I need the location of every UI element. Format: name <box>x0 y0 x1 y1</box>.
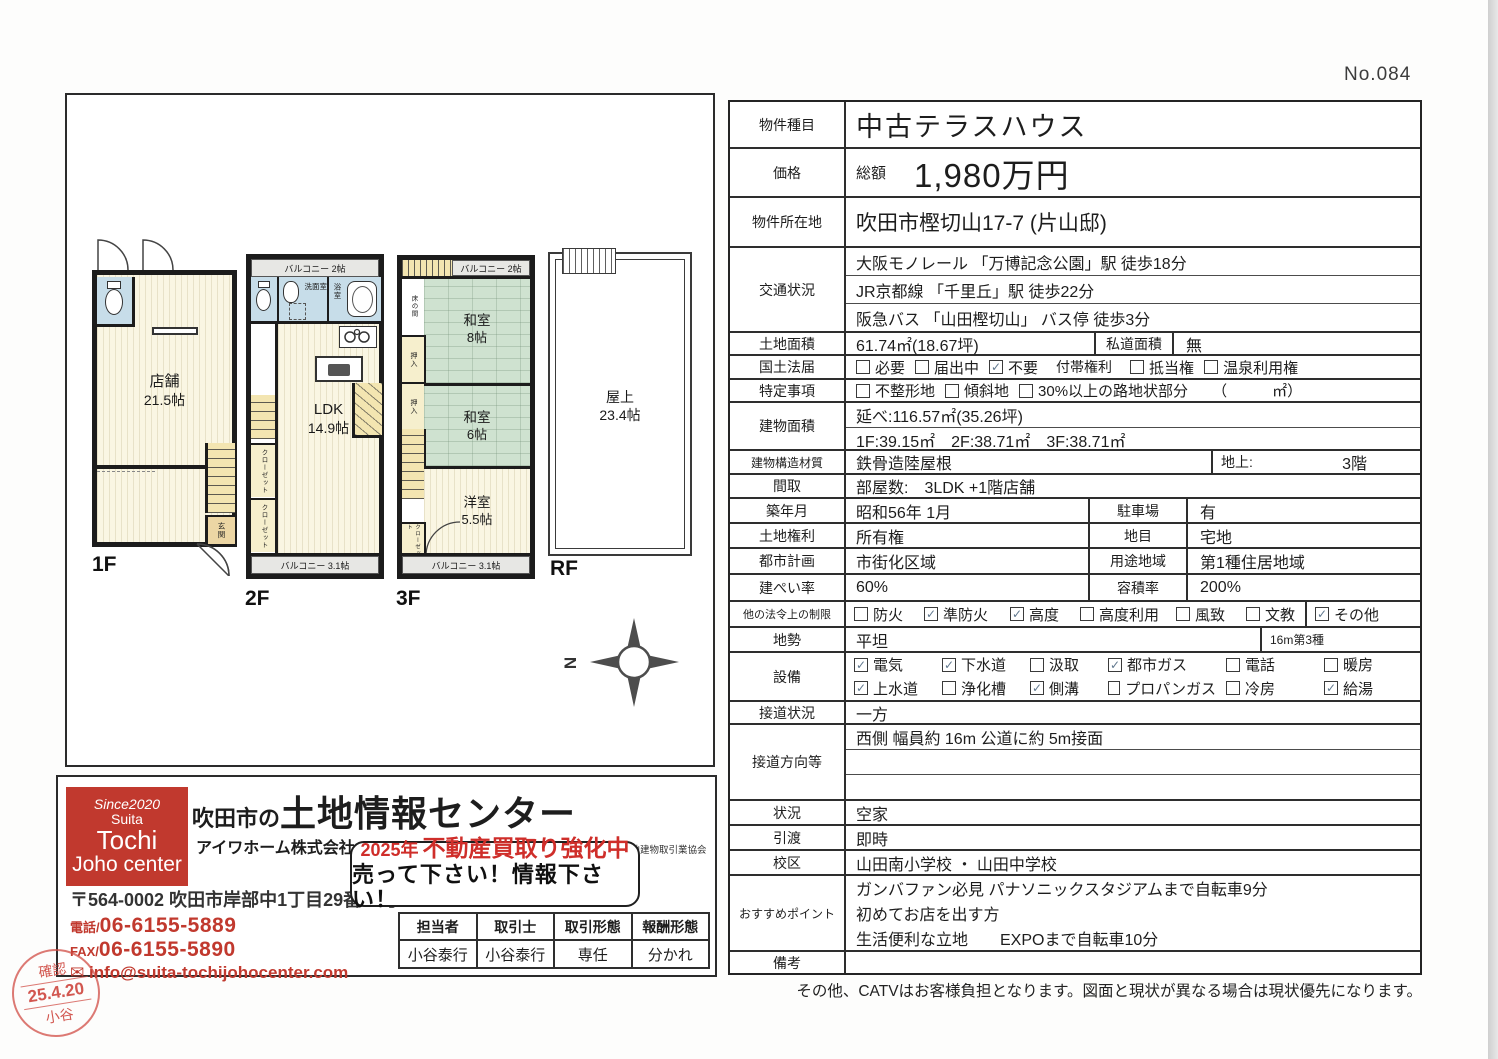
promo-banner: 2025年不動産買取り強化中 売って下さい！情報下さい！ <box>350 841 640 907</box>
coverage-value: 60% <box>846 575 1088 600</box>
land-rights-value: 所有権 <box>846 524 1088 547</box>
banner-line2: 売って下さい！情報下さい！ <box>352 862 638 913</box>
checkbox-gesuido: ✓下水道 <box>942 654 1020 675</box>
transport-line: 大阪モノレール 「万博記念公園」駅 徒歩18分 <box>846 248 1420 275</box>
row-city-planning: 都市計画 市街化区域 用途地域 第1種住居地域 <box>730 549 1420 575</box>
sink-icon <box>328 364 350 376</box>
height-district-note: 16m第3種 <box>1260 628 1420 651</box>
banner-line1: 2025年不動産買取り強化中 <box>360 835 629 861</box>
stairs-3f-down <box>402 429 426 499</box>
road-direction-lines: 西側 幅員約 16m 公道に約 5m接面 <box>846 725 1420 799</box>
road-direction-line <box>846 774 1420 799</box>
checkbox-kyuto: ✓給湯 <box>1324 678 1410 699</box>
row-label: 物件所在地 <box>730 198 846 246</box>
checkbox-hitsuyo: 必要 <box>856 357 905 378</box>
bath-label: 浴室 <box>332 283 343 300</box>
row-label: 特定事項 <box>730 380 846 401</box>
row-coverage: 建ぺい率 60% 容積率 200% <box>730 575 1420 602</box>
washer-space-icon <box>289 303 306 320</box>
tub-oval <box>352 286 373 313</box>
floor-tag-2f: 2F <box>245 587 270 611</box>
row-label: 物件種目 <box>730 102 846 147</box>
balcony-3f-bottom: バルコニー 3.1帖 <box>402 556 530 574</box>
checkbox-onsen: 温泉利用権 <box>1204 357 1298 378</box>
row-label: 築年月 <box>730 499 846 522</box>
row-label: 備考 <box>730 952 846 973</box>
stairs-rf <box>562 248 616 274</box>
row-label: 引渡 <box>730 826 846 849</box>
checkbox-sonota: ✓その他 <box>1315 604 1379 625</box>
toilet-room-1f <box>97 277 135 327</box>
row-label: 都市計画 <box>730 549 846 573</box>
footer-note: その他、CATVはお客様負担となります。図面と現状が異なる場合は現状優先になりま… <box>728 979 1422 1001</box>
oshiire-3f-2: 押入 <box>402 382 426 429</box>
fax-line: FAX/06-6155-5890 <box>70 939 399 960</box>
agent-col-header: 取引形態 <box>554 913 632 940</box>
row-school: 校区 山田南小学校 ・ 山田中学校 <box>730 851 1420 876</box>
row-label: 間取 <box>730 475 846 497</box>
price-cell: 総額 1,980万円 <box>846 149 1420 196</box>
checkbox-sokko: ✓側溝 <box>1030 678 1098 699</box>
sub-label: 容積率 <box>1088 575 1188 600</box>
row-land-rights: 土地権利 所有権 地目 宅地 <box>730 524 1420 549</box>
recommend-line: ガンバファン必見 パナソニックスタジアムまで自転車9分 <box>846 876 1420 901</box>
recommend-line: 初めてお店を出す方 <box>846 901 1420 926</box>
company-panel: Since2020 Suita Tochi Joho center 吹田市の土地… <box>56 775 717 977</box>
washroom-label: 洗面室 <box>305 281 328 292</box>
row-handover: 引渡 即時 <box>730 826 1420 851</box>
agent-cell: 小谷泰行 <box>399 940 477 968</box>
tokutei-options: 不整形地 傾斜地 30%以上の路地状部分 （ ㎡） <box>846 380 1420 401</box>
land-category-value: 宅地 <box>1188 524 1420 547</box>
washbasin-icon <box>283 281 299 303</box>
floorplan-1f: 店舗 21.5帖 玄関 <box>92 270 237 547</box>
washroom-2f: 洗面室 <box>277 277 329 321</box>
transport-lines: 大阪モノレール 「万博記念公園」駅 徒歩18分 JR京都線 「千里丘」駅 徒歩2… <box>846 248 1420 331</box>
washitsu-8-room: 和室 8帖 <box>424 279 530 383</box>
checkbox-junboka: ✓準防火 <box>924 604 1000 625</box>
kitchen-counter <box>315 356 363 382</box>
built-date-value: 昭和56年 1月 <box>846 499 1088 522</box>
scan-edge-artifact <box>1488 0 1498 1059</box>
utilities-line1: ✓電気 ✓下水道 汲取 ✓都市ガス 電話 暖房 <box>846 653 1420 677</box>
road-direction-line: 西側 幅員約 16m 公道に約 5m接面 <box>846 725 1420 749</box>
agent-col-header: 報酬形態 <box>632 913 710 940</box>
row-label: 他の法令上の制限 <box>730 602 846 626</box>
floorplan-2f: バルコニー 2帖 洗面室 浴室 LDK 14.9帖 <box>246 254 384 579</box>
room-label-washitsu6: 和室 6帖 <box>424 410 530 443</box>
washitsu-6-room: 和室 6帖 <box>424 386 530 466</box>
price-prefix: 総額 <box>856 162 886 183</box>
counter-1f <box>152 327 198 335</box>
checkbox-keisha: 傾斜地 <box>945 380 1009 401</box>
tokonoma-3f: 床の間 <box>402 279 426 333</box>
checkbox-bunkyo: 文教 <box>1246 604 1295 625</box>
agent-table-header: 担当者 取引士 取引形態 報酬形態 <box>399 913 709 940</box>
toilet-tank-icon <box>107 281 121 289</box>
utilities-lines: ✓電気 ✓下水道 汲取 ✓都市ガス 電話 暖房 ✓上水道 浄化槽 ✓側溝 プロパ… <box>846 653 1420 700</box>
row-label: 建ぺい率 <box>730 575 846 600</box>
checkbox-reibo: 冷房 <box>1226 678 1314 699</box>
stamp-name: 小谷 <box>44 1004 75 1028</box>
row-road-contact: 接道状況 一方 <box>730 702 1420 725</box>
closet-2f-2: クローゼット <box>251 498 275 552</box>
floor-tag-1f: 1F <box>92 553 117 577</box>
transport-line: JR京都線 「千里丘」駅 徒歩22分 <box>846 275 1420 303</box>
checkbox-kodoriyo: 高度利用 <box>1080 604 1166 625</box>
row-recommend: おすすめポイント ガンバファン必見 パナソニックスタジアムまで自転車9分 初めて… <box>730 876 1420 952</box>
toilet-tank-icon <box>258 281 270 288</box>
stove-icon <box>339 326 377 348</box>
stairs-3f-top <box>402 260 454 276</box>
compass-north-letter: N <box>561 657 581 669</box>
row-label: おすすめポイント <box>730 876 846 950</box>
entrance-1f: 玄関 <box>205 515 235 544</box>
company-name: アイワホーム株式会社 <box>196 840 355 857</box>
city-planning-value: 市街化区域 <box>846 549 1088 573</box>
sub-label: 地目 <box>1088 524 1188 547</box>
structure-value: 鉄骨造陸屋根 <box>846 451 1211 473</box>
floors-cell: 地上: 3階 <box>1211 451 1420 473</box>
floor-tag-rf: RF <box>550 557 578 581</box>
compass-star-icon <box>587 615 682 710</box>
email-address: info@suita-tochijohocenter.com <box>89 963 348 982</box>
private-road-value: 無 <box>1174 333 1420 354</box>
utilities-line2: ✓上水道 浄化槽 ✓側溝 プロパンガス 冷房 ✓給湯 <box>846 677 1420 701</box>
checkbox-kumitori: 汲取 <box>1030 654 1098 675</box>
sub-label: 用途地域 <box>1088 549 1188 573</box>
row-utilities: 設備 ✓電気 ✓下水道 汲取 ✓都市ガス 電話 暖房 ✓上水道 浄化槽 ✓側溝 … <box>730 653 1420 702</box>
row-address: 物件所在地 吹田市樫切山17-7 (片山邸) <box>730 198 1420 248</box>
balcony-2f-top: バルコニー 2帖 <box>251 259 379 277</box>
ldk-room: LDK 14.9帖 <box>278 324 379 553</box>
row-built-date: 築年月 昭和56年 1月 駐車場 有 <box>730 499 1420 524</box>
stairs-2f-down <box>251 395 275 439</box>
building-area-lines: 延べ:116.57㎡(35.26坪) 1F:39.15㎡ 2F:38.71㎡ 3… <box>846 403 1420 449</box>
door-arc-icon <box>195 542 237 576</box>
property-detail-table: 物件種目 中古テラスハウス 価格 総額 1,980万円 物件所在地 吹田市樫切山… <box>728 100 1422 975</box>
row-label: 設備 <box>730 653 846 700</box>
yoshitsu-room: 洋室 5.5帖 <box>424 469 530 556</box>
row-label: 校区 <box>730 851 846 874</box>
compass-rose: N <box>565 615 685 710</box>
row-label: 建物面積 <box>730 403 846 449</box>
row-building-area: 建物面積 延べ:116.57㎡(35.26坪) 1F:39.15㎡ 2F:38.… <box>730 403 1420 451</box>
sonota-cell: ✓その他 <box>1305 602 1465 626</box>
row-structure: 建物構造材質 鉄骨造陸屋根 地上: 3階 <box>730 451 1420 475</box>
room-label-roof: 屋上 23.4帖 <box>550 389 690 424</box>
row-road-direction: 接道方向等 西側 幅員約 16m 公道に約 5m接面 <box>730 725 1420 801</box>
school-value: 山田南小学校 ・ 山田中学校 <box>846 851 1420 874</box>
building-area-floors: 1F:39.15㎡ 2F:38.71㎡ 3F:38.71㎡ <box>846 427 1420 452</box>
company-logo: Since2020 Suita Tochi Joho center <box>66 787 188 886</box>
agent-cell: 分かれ <box>632 940 710 968</box>
checkbox-fuyo: ✓不要 <box>989 357 1038 378</box>
checkbox-denki: ✓電気 <box>854 654 932 675</box>
partition-wall <box>97 465 209 469</box>
door-arc-icon <box>95 236 200 271</box>
floorplan-rf: 屋上 23.4帖 <box>548 252 692 556</box>
checkbox-teitoken: 抵当権 <box>1130 357 1194 378</box>
balcony-2f-bottom: バルコニー 3.1帖 <box>251 556 379 574</box>
terrain-value: 平坦 <box>846 628 1260 651</box>
building-area-total: 延べ:116.57㎡(35.26坪) <box>846 403 1420 427</box>
row-transport: 交通状況 大阪モノレール 「万博記念公園」駅 徒歩18分 JR京都線 「千里丘」… <box>730 248 1420 333</box>
sub-label: 駐車場 <box>1088 499 1188 522</box>
restriction-options: 防火 ✓準防火 ✓高度 高度利用 風致 文教 <box>846 602 1305 626</box>
checkbox-fuchi: 風致 <box>1176 604 1236 625</box>
checkbox-fuseikei: 不整形地 <box>856 380 935 401</box>
remarks-value <box>846 952 1420 973</box>
checkbox-denwa: 電話 <box>1226 654 1314 675</box>
floors-value: 3階 <box>1342 450 1367 474</box>
row-property-type: 物件種目 中古テラスハウス <box>730 102 1420 149</box>
row-label: 地勢 <box>730 628 846 651</box>
checkbox-josuido: ✓上水道 <box>854 678 932 699</box>
recommend-line: 生活便利な立地 EXPOまで自転車10分 <box>846 925 1420 950</box>
row-price: 価格 総額 1,980万円 <box>730 149 1420 198</box>
land-area-value: 61.74㎡(18.67坪) <box>846 333 1094 354</box>
floorplan-panel: 店舗 21.5帖 玄関 1F バルコニー 2帖 洗面室 浴室 <box>65 93 715 767</box>
recommend-lines: ガンバファン必見 パナソニックスタジアムまで自転車9分 初めてお店を出す方 生活… <box>846 876 1420 950</box>
company-title-prefix: 吹田市の <box>192 806 280 831</box>
checkbox-boka: 防火 <box>854 604 914 625</box>
toilet-icon <box>105 289 123 315</box>
stairs-1f <box>205 443 235 513</box>
row-label: 土地面積 <box>730 333 846 354</box>
floor-tag-3f: 3F <box>396 587 421 611</box>
checkbox-danbo: 暖房 <box>1324 654 1410 675</box>
row-label: 土地権利 <box>730 524 846 547</box>
floorplan-3f: バルコニー 2帖 床の間 和室 8帖 押入 押入 和室 6帖 洋 <box>397 255 535 579</box>
row-label: 接道方向等 <box>730 725 846 799</box>
row-legal-restrictions: 他の法令上の制限 防火 ✓準防火 ✓高度 高度利用 風致 文教 ✓その他 <box>730 602 1420 628</box>
checkbox-jokaso: 浄化槽 <box>942 678 1020 699</box>
row-kokudo: 国土法届 必要 届出中 ✓不要 付帯権利 抵当権 温泉利用権 <box>730 356 1420 380</box>
toilet-icon <box>256 289 271 311</box>
futai-kenri-label: 付帯権利 <box>1056 357 1112 377</box>
agent-table: 担当者 取引士 取引形態 報酬形態 小谷泰行 小谷泰行 専任 分かれ <box>398 912 710 969</box>
company-contact: 〒564-0002 吹田市岸部中1丁目29番13号 電話/06-6155-588… <box>70 891 399 981</box>
sub-label: 私道面積 <box>1094 333 1174 354</box>
partition-wall <box>275 321 278 553</box>
row-tokutei: 特定事項 不整形地 傾斜地 30%以上の路地状部分 （ ㎡） <box>730 380 1420 403</box>
zoning-value: 第1種住居地域 <box>1188 549 1420 573</box>
logo-line: Since2020 <box>94 797 160 812</box>
email-line: ✉ info@suita-tochijohocenter.com <box>70 964 399 981</box>
room-label-shop: 店舗 21.5帖 <box>97 373 232 409</box>
transport-line: 阪急バス 「山田樫切山」 バス停 徒歩3分 <box>846 303 1420 331</box>
agent-col-header: 取引士 <box>477 913 555 940</box>
balcony-3f-top: バルコニー 2帖 <box>452 260 530 276</box>
checkbox-kodo: ✓高度 <box>1010 604 1070 625</box>
bathroom-2f: 浴室 <box>327 277 381 321</box>
checkbox-toshigas: ✓都市ガス <box>1108 654 1216 675</box>
parking-value: 有 <box>1188 499 1420 522</box>
row-land-area: 土地面積 61.74㎡(18.67坪) 私道面積 無 <box>730 333 1420 356</box>
above-ground-label: 地上: <box>1221 452 1253 472</box>
row-label: 価格 <box>730 149 846 196</box>
company-title-main: 土地情報センター <box>280 793 576 834</box>
document-number: No.084 <box>1344 64 1411 86</box>
closet-2f-1: クローゼット <box>251 443 275 497</box>
row-label: 接道状況 <box>730 702 846 723</box>
row-status: 状況 空家 <box>730 801 1420 826</box>
row-label: 国土法届 <box>730 356 846 378</box>
toilet-room-2f <box>251 277 277 321</box>
room-label-washitsu8: 和室 8帖 <box>424 313 530 346</box>
status-value: 空家 <box>846 801 1420 824</box>
agent-col-header: 担当者 <box>399 913 477 940</box>
row-label: 交通状況 <box>730 248 846 331</box>
layout-value: 部屋数: 3LDK +1階店舗 <box>846 475 1420 497</box>
property-type-value: 中古テラスハウス <box>846 102 1420 147</box>
stairs-2f-up <box>352 383 382 438</box>
row-remarks: 備考 <box>730 952 1420 973</box>
company-title: 吹田市の土地情報センター <box>192 785 576 837</box>
handover-value: 即時 <box>846 826 1420 849</box>
checkbox-todokedechu: 届出中 <box>915 357 979 378</box>
logo-line: Joho center <box>72 854 182 876</box>
price-value: 1,980万円 <box>914 149 1070 197</box>
road-direction-line <box>846 749 1420 774</box>
row-layout: 間取 部屋数: 3LDK +1階店舗 <box>730 475 1420 499</box>
agent-cell: 小谷泰行 <box>477 940 555 968</box>
floor-ratio-value: 200% <box>1188 575 1420 600</box>
phone-line: 電話/06-6155-5889 <box>70 915 399 936</box>
road-contact-value: 一方 <box>846 702 1420 723</box>
row-terrain: 地勢 平坦 16m第3種 <box>730 628 1420 653</box>
logo-line: Tochi <box>97 827 158 854</box>
checkbox-propangas: プロパンガス <box>1108 678 1216 699</box>
checkbox-rojijo: 30%以上の路地状部分 <box>1019 380 1188 401</box>
door-arc-icon <box>424 520 460 556</box>
area-blank-suffix: （ ㎡） <box>1212 380 1302 401</box>
agent-cell: 専任 <box>554 940 632 968</box>
row-label: 状況 <box>730 801 846 824</box>
row-label: 建物構造材質 <box>730 451 846 473</box>
oshiire-3f-1: 押入 <box>402 335 426 382</box>
kokudo-options: 必要 届出中 ✓不要 付帯権利 抵当権 温泉利用権 <box>846 356 1420 378</box>
agent-table-values: 小谷泰行 小谷泰行 専任 分かれ <box>399 940 709 968</box>
dashed-line <box>97 471 155 472</box>
address-value: 吹田市樫切山17-7 (片山邸) <box>846 198 1420 246</box>
bathtub-icon <box>347 281 377 317</box>
